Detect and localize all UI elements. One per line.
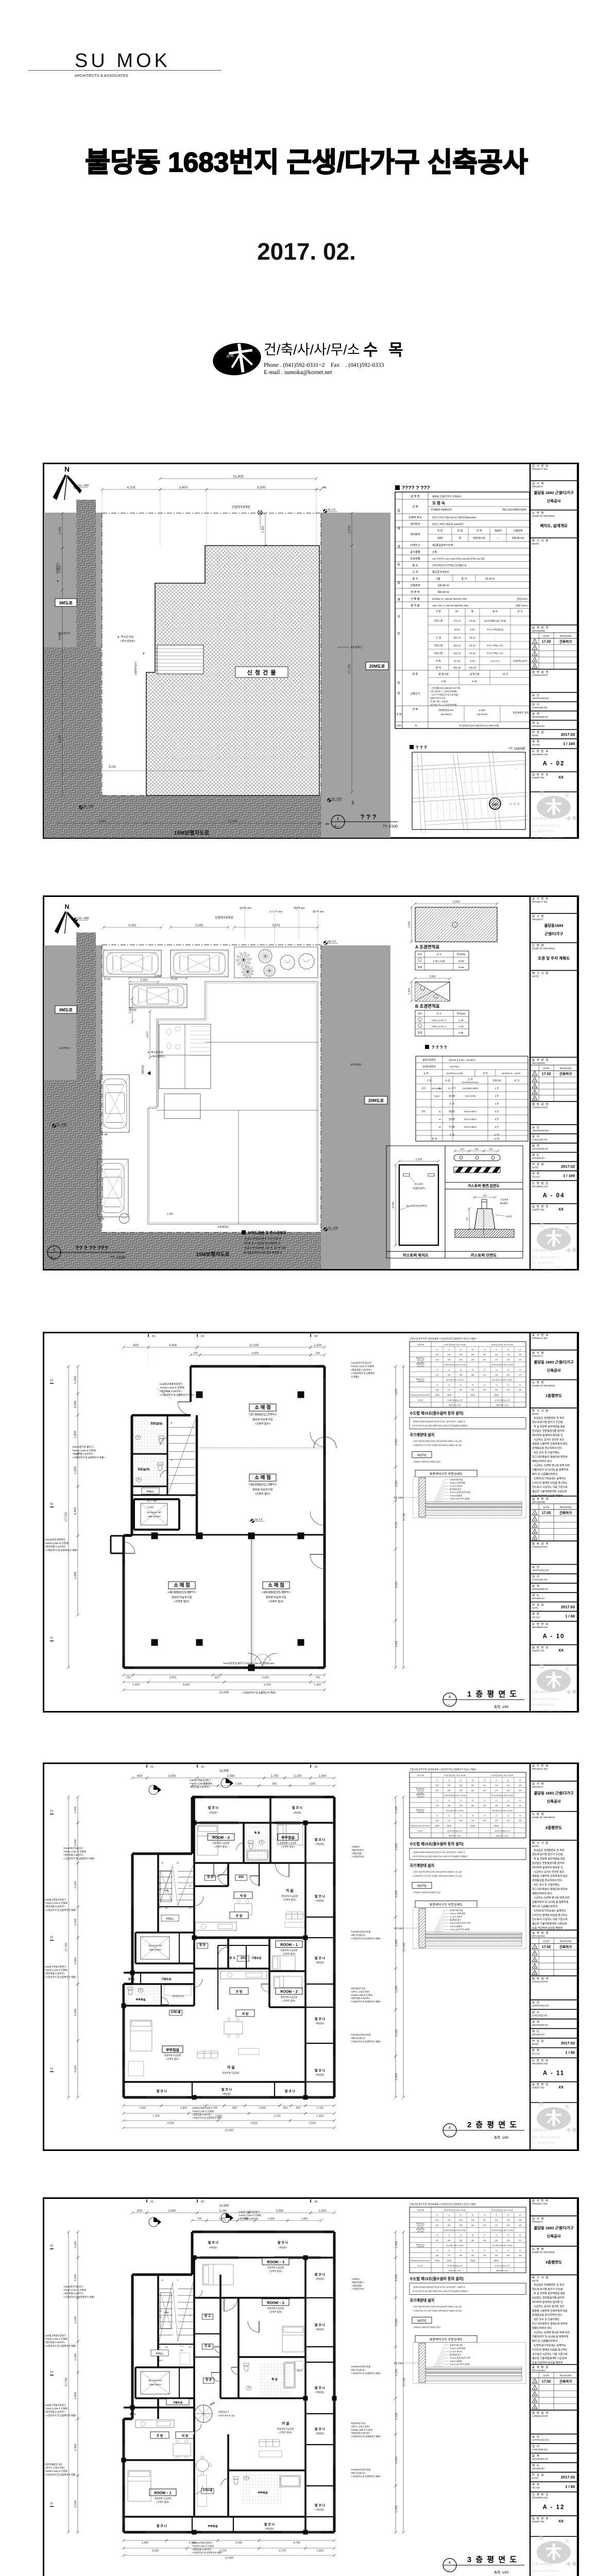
svg-text:木: 木 (565, 793, 570, 800)
svg-text:가: 가 (436, 2234, 438, 2236)
svg-text:<건축주 협의>: <건축주 협의> (268, 1600, 284, 1603)
svg-text:? ? ?: ? ? ? (360, 813, 376, 821)
svg-text:구 조: 구 조 (412, 570, 418, 574)
svg-text:–: – (498, 537, 499, 540)
svg-text:700: 700 (193, 1352, 198, 1355)
svg-text:가: 가 (484, 1799, 486, 1802)
svg-text:도 면 번 호: 도 면 번 호 (532, 1181, 549, 1185)
svg-text:DN: DN (158, 2346, 161, 2348)
svg-text:NOTE: NOTE (532, 543, 539, 545)
svg-text:<확장형>: <확장형> (315, 2022, 325, 2025)
svg-text:(16.97m2): (16.97m2) (477, 713, 488, 716)
svg-text:· 시공자는 공사의 천전한 모든: · 시공자는 공사의 천전한 모든 (532, 1870, 565, 1874)
svg-text:– 환경부의 환경표지인증을 받은 절수용 수도꼭지, 절수: – 환경부의 환경표지인증을 받은 절수용 수도꼭지, 절수영 양변기, 사워헤… (412, 1851, 465, 1853)
svg-text:벽돌치장쌓기: 벽돌치장쌓기 (352, 2280, 364, 2284)
svg-text:44.39: 44.39 (469, 652, 475, 655)
svg-text:용 도: 용 도 (492, 610, 498, 613)
svg-text:8,330: 8,330 (59, 735, 62, 743)
svg-text:폴리필름 깔기: 폴리필름 깔기 (450, 2353, 461, 2356)
svg-text:설 계 변 경: 설 계 변 경 (532, 1930, 549, 1935)
svg-text:16.97X0.2=3.39: 16.97X0.2=3.39 (446, 1072, 463, 1075)
svg-text:Ø13볼트: Ø13볼트 (500, 1201, 508, 1205)
svg-text:2,100: 2,100 (147, 1506, 154, 1509)
svg-text:연도에 표기환 높이가 우선됨.: 연도에 표기환 높이가 우선됨. (532, 1420, 564, 1424)
svg-text:5: 5 (534, 1537, 536, 1540)
svg-text:대: 대 (459, 536, 462, 540)
svg-text:건축허가: 건축허가 (559, 1944, 572, 1949)
svg-text:검 사: 검 사 (532, 1134, 540, 1139)
svg-text:◄· 투수콘 마감: ◄· 투수콘 마감 (147, 1050, 163, 1054)
svg-text:165: 165 (459, 1354, 463, 1356)
svg-text:1,700: 1,700 (270, 1775, 279, 1778)
svg-text:다(45): 다(45) (470, 1824, 475, 1827)
svg-text:Y3: Y3 (50, 1379, 53, 1382)
svg-text:2 본: 2 본 (495, 1087, 499, 1090)
svg-text:2.99: 2.99 (459, 1031, 464, 1034)
svg-text:THK60 LOW–E 단열재: THK60 LOW–E 단열재 (45, 1969, 67, 1972)
svg-text:발 코 니: 발 코 니 (315, 1838, 325, 1842)
svg-text:17,700: 17,700 (403, 2378, 406, 2386)
svg-text:GL –300: GL –300 (57, 1123, 66, 1126)
svg-text:거 실: 거 실 (282, 2421, 290, 2426)
svg-text:도로경계선: 도로경계선 (217, 1225, 229, 1229)
svg-text:공 사 명: 공 사 명 (532, 481, 544, 485)
svg-text:라: 라 (519, 1368, 521, 1371)
svg-text:9: 9 (177, 2279, 178, 2281)
svg-text:DRAWN BY: DRAWN BY (532, 2467, 545, 2470)
svg-text:특 기 사 항: 특 기 사 항 (532, 538, 549, 543)
svg-text:2,100: 2,100 (74, 1882, 77, 1889)
svg-text:광륜주택의 1.9이하: 광륜주택의 1.9이하 (496, 2269, 508, 2272)
svg-text:235: 235 (459, 1374, 463, 1376)
svg-text:거실의 바닥: 거실의 바닥 (417, 1380, 424, 1382)
svg-text:DESIGNED BY: DESIGNED BY (532, 2458, 548, 2461)
svg-text:<건축주 협의>: <건축주 협의> (279, 2431, 292, 2434)
svg-text:Phone . (041)592-0331~2: Phone . (041)592-0331~2 (531, 2569, 560, 2573)
svg-text:협 력 설 계: 협 력 설 계 (532, 2411, 549, 2415)
svg-text:145: 145 (483, 2224, 486, 2226)
svg-text:17.02: 17.02 (542, 1945, 551, 1949)
svg-text:THK30현무암 붙이기 THK60 LOW–E 단열재1: THK30현무암 붙이기 THK60 LOW–E 단열재1,600 (223, 1662, 275, 1665)
svg-text:5: 5 (534, 1972, 536, 1975)
svg-text:신축공사: 신축공사 (547, 499, 560, 503)
svg-text:145: 145 (483, 1789, 486, 1791)
svg-text:거실의 외벽: 거실의 외벽 (417, 2209, 424, 2211)
svg-text:다: 다 (460, 1348, 462, 1351)
svg-text:발 코 니: 발 코 니 (208, 2241, 218, 2245)
svg-text:· 도면에 표기하상세는 설계적도: · 도면에 표기하상세는 설계적도 (532, 1909, 566, 1912)
svg-text:교목: 교목 (421, 1087, 425, 1090)
svg-text:1,400: 1,400 (74, 1806, 77, 1814)
svg-text:21: 21 (189, 1885, 191, 1887)
svg-text:용 적 율: 용 적 율 (411, 604, 420, 607)
svg-text:木: 木 (565, 1225, 570, 1231)
svg-text:라: 라 (519, 2249, 521, 2251)
svg-text:6: 6 (431, 790, 432, 792)
svg-text:185: 185 (471, 1354, 474, 1356)
svg-text:3: 3 (534, 1524, 536, 1528)
svg-text:것으로서 시공자는 이를 기준으로: 것으로서 시공자는 이를 기준으로 (532, 1485, 568, 1489)
svg-text:대지위치: 대지위치 (410, 522, 420, 526)
svg-text:설 계: 설 계 (532, 1144, 540, 1148)
svg-text:23: 23 (177, 1862, 179, 1864)
svg-text:2,900: 2,900 (74, 2444, 77, 2451)
svg-text:6,000: 6,000 (392, 1202, 395, 1209)
svg-text:수도법 제15조(절수설비 등의 설치): 수도법 제15조(절수설비 등의 설치) (410, 1411, 464, 1415)
svg-text:Phone . (041)592-0331~2: Phone . (041)592-0331~2 (531, 1698, 560, 1701)
svg-text:THK40 시멘트몰탈: THK40 시멘트몰탈 (450, 2347, 466, 2350)
svg-text:TEL:010-9633-9247: TEL:010-9633-9247 (502, 509, 526, 512)
svg-text:3,300: 3,300 (395, 1890, 398, 1897)
svg-text:▲: ▲ (56, 580, 59, 583)
svg-text:E-mail . sumoka@kornet.net: E-mail . sumoka@kornet.net (531, 1267, 564, 1270)
svg-text:다: 다 (507, 1368, 509, 1371)
svg-text:2.35 x 5.95: 2.35 x 5.95 (433, 960, 445, 962)
svg-text:◄· 투수콘 마감: ◄· 투수콘 마감 (117, 635, 134, 639)
svg-text:DRAWING NO.: DRAWING NO. (532, 2062, 548, 2065)
svg-text:지역지구: 지역지구 (410, 543, 420, 547)
svg-text:2,300: 2,300 (140, 979, 147, 982)
svg-text:2,900: 2,900 (74, 2392, 77, 2399)
svg-text:THK20 완충재: THK20 완충재 (450, 2360, 462, 2362)
svg-text:<열관류율 0.26이하>: <열관류율 0.26이하> (63, 2292, 84, 2295)
svg-text:85: 85 (484, 2219, 486, 2222)
svg-text:4,677: 4,677 (146, 1031, 149, 1038)
svg-text:세탁기: 세탁기 (297, 2369, 302, 2372)
svg-text:H2.0 X W0.6: H2.0 X W0.6 (464, 1126, 476, 1128)
svg-text:E-mail . sumoka@kornet.net: E-mail . sumoka@kornet.net (531, 1709, 564, 1713)
svg-text:THK60 LOW–E 단열재: THK60 LOW–E 단열재 (45, 2407, 67, 2411)
svg-text:화장실(남): 화장실(남) (150, 1421, 163, 1426)
svg-text:NOTE: NOTE (532, 1413, 539, 1415)
svg-text:THK30포천석면대리: THK30포천석면대리 (45, 1538, 65, 1541)
svg-text:●: ● (439, 1126, 441, 1128)
svg-text:REVISIONS: REVISIONS (560, 1506, 572, 1509)
svg-text:외기에 간접 면하는 경우: 외기에 간접 면하는 경우 (495, 1829, 509, 1832)
svg-text:라: 라 (519, 1383, 521, 1386)
svg-text:인접대지경계선: 인접대지경계선 (215, 916, 233, 920)
svg-text:Y3: Y3 (50, 1810, 53, 1813)
svg-text:건축허가: 건축허가 (559, 1510, 572, 1515)
svg-text:외기에 간접 면하는 경우: 외기에 간접 면하는 경우 (495, 2264, 509, 2267)
svg-text:250: 250 (489, 1148, 493, 1150)
svg-text:소 매 점: 소 매 점 (268, 1582, 284, 1588)
svg-text:<확장형>: <확장형> (222, 2092, 231, 2096)
svg-text:SHEET NO.: SHEET NO. (532, 2520, 545, 2523)
svg-text:125: 125 (495, 1389, 498, 1391)
svg-text:소 매 점: 소 매 점 (174, 1582, 190, 1588)
svg-text:닫상없는 전망첨겸구물 설치하: 닫상없는 전망첨겸구물 설치하 (532, 1861, 565, 1865)
svg-text:제 도: 제 도 (532, 1593, 540, 1597)
svg-text:A/C: A/C (180, 2349, 183, 2351)
svg-text:CONSULTANT: CONSULTANT (532, 1106, 548, 1109)
svg-text:●: ● (439, 1087, 441, 1090)
svg-text:<시험성적서 및 납품확인서 제출>: <시험성적서 및 납품확인서 제출> (351, 2371, 381, 2375)
svg-text:라: 라 (472, 1348, 474, 1351)
svg-text:창 고: 창 고 (205, 2314, 211, 2318)
svg-text:라: 라 (472, 2249, 474, 2251)
svg-text:6,900: 6,900 (395, 1582, 398, 1588)
svg-text:도를 작성하여 승인올 확한후: 도를 작성하여 승인올 확한후 (532, 2361, 563, 2365)
svg-text:THK60 LOW–E 단열재: THK60 LOW–E 단열재 (45, 2337, 67, 2341)
svg-text:나(35): 나(35) (447, 1824, 451, 1827)
svg-text:최하층에 있는: 최하층에 있는 (416, 1793, 425, 1795)
svg-text:ELEV O.H: ELEV O.H (490, 660, 500, 663)
svg-text:196.90 m²: 196.90 m² (438, 584, 450, 587)
svg-text:6M도로: 6M도로 (59, 601, 73, 605)
svg-text:조경 및 주차 계획도: 조경 및 주차 계획도 (538, 956, 570, 961)
svg-text:최하층에 있는: 최하층에 있는 (416, 1378, 425, 1380)
svg-text:욕 실: 욕 실 (271, 2377, 278, 2381)
svg-text:45.42: 45.42 (469, 645, 475, 647)
svg-text:5: 5 (446, 808, 447, 810)
svg-text:연도에 표기환 높이가 우선됨.: 연도에 표기환 높이가 우선됨. (532, 2287, 564, 2291)
svg-text:1,600: 1,600 (74, 1466, 77, 1474)
svg-text:발 코 니: 발 코 니 (208, 1806, 218, 1810)
svg-text:천안시 서북구 불당11로 82 대원칸타빌603/606: 천안시 서북구 불당11로 82 대원칸타빌603/606 (432, 516, 476, 519)
svg-text:CHECKED BY: CHECKED BY (532, 2448, 548, 2451)
svg-text:공 사 명: 공 사 명 (532, 914, 544, 918)
svg-text:17,700: 17,700 (348, 664, 351, 674)
svg-text:琇: 琇 (539, 2102, 543, 2107)
svg-text:<37.60M2/11.37PY>: <37.60M2/11.37PY> (249, 1414, 277, 1417)
svg-text:11,400: 11,400 (233, 475, 244, 479)
svg-text:REVISIONS: REVISIONS (532, 2369, 545, 2371)
svg-text:THK60 LOW–E 단열재: THK60 LOW–E 단열재 (351, 1365, 374, 1368)
svg-text:지 목: 지 목 (457, 529, 463, 533)
svg-text:1,400: 1,400 (219, 2217, 226, 2221)
svg-text:라: 라 (519, 1779, 521, 1782)
svg-text:면적(M2): 면적(M2) (457, 1012, 466, 1015)
svg-text:XL 온수 파이프: XL 온수 파이프 (450, 1916, 463, 1918)
svg-text:바닥 난방인 경우 (0.22이하): 바닥 난방인 경우 (0.22이하) (446, 1809, 464, 1812)
svg-text:3: 3 (534, 1086, 536, 1089)
svg-text:가: 가 (436, 1368, 438, 1371)
svg-text:220: 220 (436, 2224, 439, 2226)
svg-text:328.90 X 0.05 = 16.45m2: 328.90 X 0.05 = 16.45m2 (449, 1059, 475, 1061)
svg-text:다(45): 다(45) (470, 2259, 475, 2262)
svg-text:200: 200 (459, 1389, 463, 1391)
svg-text:1,800: 1,800 (180, 2107, 187, 2110)
svg-text:발 코 니: 발 코 니 (315, 1894, 325, 1899)
svg-text:2,900: 2,900 (74, 1957, 77, 1964)
svg-text:건축면적1/8이하: 건축면적1/8이하 (513, 659, 527, 663)
svg-text:라: 라 (519, 2214, 521, 2216)
svg-text:부부욕실: 부부욕실 (258, 2490, 267, 2495)
svg-text:A - 12: A - 12 (543, 2504, 565, 2511)
svg-text:2층평면도: 2층평면도 (546, 1825, 562, 1830)
svg-text:발 코 니: 발 코 니 (315, 2503, 325, 2507)
svg-text:(40%)상록수: (40%)상록수 (432, 1087, 442, 1090)
svg-text:5 대: 5 대 (472, 680, 476, 683)
svg-text:나: 나 (496, 2214, 498, 2216)
svg-text:5,950: 5,950 (453, 901, 460, 904)
svg-text:<시험성적서 및 납품확인서 제출>: <시험성적서 및 납품확인서 제출> (45, 2473, 77, 2477)
svg-text:4,228: 4,228 (127, 486, 135, 489)
svg-text:필요한 기술적원봉계처 시공상세: 필요한 기술적원봉계처 시공상세 (532, 1490, 567, 1494)
svg-text:도로경계석: 도로경계석 (59, 1046, 70, 1050)
svg-text:소 계: 소 계 (449, 1133, 454, 1137)
svg-text:600: 600 (214, 1676, 219, 1679)
svg-text:8,000: 8,000 (257, 486, 266, 489)
svg-text:특 기 사 항: 특 기 사 항 (532, 1409, 549, 1413)
svg-text:식 당: 식 당 (182, 2434, 189, 2438)
svg-text:1,600: 1,600 (268, 2217, 275, 2221)
svg-text:라: 라 (472, 1383, 474, 1386)
svg-text:일 련 번 호: 일 련 번 호 (532, 2082, 549, 2087)
svg-text:1 / 80: 1 / 80 (565, 2050, 575, 2055)
svg-text:X2: X2 (201, 2200, 204, 2204)
svg-text:30: 30 (165, 1907, 167, 1909)
svg-text:2: 2 (534, 1079, 536, 1082)
svg-text:다(45): 다(45) (470, 1394, 475, 1396)
svg-text:3,400: 3,400 (169, 1344, 177, 1347)
svg-text:1,300: 1,300 (408, 988, 411, 995)
svg-text:신청면적: 신청면적 (513, 529, 522, 533)
svg-text:욕 실: 욕 실 (254, 1831, 260, 1835)
svg-text:라(50): 라(50) (494, 1394, 499, 1396)
svg-text:조 경: 조 경 (396, 713, 401, 716)
svg-text:광륜주택의 1.5이하: 광륜주택의 1.5이하 (449, 1835, 461, 1837)
svg-text:외기에 간접 면하는 경우 (0.22이하): 외기에 간접 면하는 경우 (0.22이하) (491, 1363, 514, 1366)
svg-text:346: 346 (322, 486, 327, 489)
svg-text:신축공사: 신축공사 (547, 2234, 560, 2239)
svg-text:1,700: 1,700 (317, 2107, 323, 2110)
svg-text:한실마루/고급장판: 한실마루/고급장판 (281, 1894, 298, 1898)
svg-text:195.76: 195.76 (453, 637, 461, 639)
svg-text:Y1: Y1 (50, 2067, 53, 2071)
svg-text:NOTE: NOTE (417, 1453, 427, 1457)
svg-text:DRAWN BY: DRAWN BY (532, 725, 545, 727)
svg-text:<확장형>: <확장형> (293, 1811, 302, 1815)
svg-text:소 나 무–25A: 소 나 무–25A (269, 910, 283, 913)
svg-text:다: 다 (507, 1348, 509, 1351)
svg-text:XX: XX (558, 1648, 564, 1652)
svg-text:가정용승강기: 가정용승강기 (218, 2411, 229, 2413)
svg-text:150.12: 150.12 (453, 645, 461, 647)
svg-text:1,400: 1,400 (132, 1684, 140, 1687)
svg-text:외기에 직접 면하는 경우 (0.26이하): 외기에 직접 면하는 경우 (0.26이하) (444, 1774, 466, 1776)
svg-text:낙엽수: 낙엽수 (434, 1095, 440, 1097)
svg-text:<본넥스 오필스마천>: <본넥스 오필스마천> (351, 1990, 370, 1993)
svg-text:나: 나 (448, 2234, 450, 2236)
svg-text:DRAWN BY: DRAWN BY (532, 1157, 545, 1160)
svg-text:P–C: P–C (180, 2345, 184, 2347)
svg-text:종단향: 종단향 (449, 1094, 455, 1097)
svg-text:거실의 바닥: 거실의 바닥 (417, 2245, 424, 2248)
svg-text:거 실: 거 실 (286, 1888, 294, 1893)
svg-text:5: 5 (534, 1098, 536, 1101)
svg-text:나: 나 (496, 1814, 498, 1817)
svg-text:X3: X3 (314, 2200, 317, 2204)
svg-text:<확장형>: <확장형> (315, 1899, 325, 1903)
svg-text:Y1: Y1 (50, 1637, 53, 1640)
svg-text:APPROVED BY: APPROVED BY (532, 2005, 549, 2007)
svg-text:N: N (64, 466, 70, 473)
svg-text:외기에 직접 면하는 경우 (0.15이하): 외기에 직접 면하는 경우 (0.15이하) (444, 1363, 466, 1366)
svg-text:VOID: VOID (164, 1889, 169, 1892)
svg-text:330: 330 (471, 2224, 474, 2226)
svg-text:2,300: 2,300 (429, 975, 436, 978)
svg-text:축척: 1/80: 축척: 1/80 (494, 2570, 509, 2574)
svg-text:건/축/사/사무/소: 건/축/사/사무/소 (531, 816, 553, 821)
svg-text:<ME–LESS>: <ME–LESS> (149, 1948, 162, 1951)
svg-text:1,500: 1,500 (139, 2107, 146, 2110)
svg-text:<열관류율>: <열관류율> (352, 2284, 363, 2287)
svg-text:5.94: 5.94 (470, 629, 475, 631)
svg-text:일 련 번 호: 일 련 번 호 (532, 772, 549, 776)
svg-text:바닥난방인 층간바닥(0.81이하): 바닥난방인 층간바닥(0.81이하) (411, 1394, 430, 1396)
svg-text:3,500: 3,500 (74, 2274, 77, 2281)
svg-text:127.99 / 75 = 1.71대 4: 127.99 / 75 = 1.71대 4대적용 (430, 703, 457, 706)
svg-text:· 모든 공사 및 건설지재는: · 모든 공사 및 건설지재는 (532, 1451, 560, 1454)
svg-text:2,532: 2,532 (348, 525, 351, 533)
svg-text:NOTE: NOTE (417, 1884, 427, 1888)
svg-text:제 도: 제 도 (532, 721, 540, 725)
svg-text:SL ± 0: SL ± 0 (255, 1518, 262, 1521)
svg-text:설 계 변 경: 설 계 변 경 (532, 1058, 549, 1062)
svg-text:14: 14 (159, 2316, 161, 2318)
svg-text:125: 125 (495, 1820, 498, 1822)
svg-text:<열관류율 0.26이하>: <열관류율 0.26이하> (45, 1972, 65, 1975)
svg-text:0.58청고벽돌치장쌓기: 0.58청고벽돌치장쌓기 (190, 1778, 211, 1782)
svg-text:1: 1 (534, 1512, 536, 1515)
svg-text:번호: 번호 (418, 1012, 422, 1015)
svg-text:<시험성적서 및 납품확인서 제출>: <시험성적서 및 납품확인서 제출> (351, 2040, 381, 2043)
svg-text:GL + 800: GL + 800 (78, 917, 89, 920)
svg-text:3,500: 3,500 (395, 2274, 398, 2281)
svg-text:NOTE: NOTE (532, 975, 539, 978)
svg-text:220: 220 (471, 1389, 474, 1391)
svg-text:카스토퍼: 카스토퍼 (415, 1182, 423, 1186)
svg-text:소 계: 소 계 (449, 1102, 454, 1106)
svg-text:지 번: 지 번 (437, 529, 443, 533)
svg-text:1,400: 1,400 (314, 1684, 321, 1687)
svg-text:NAME OF DRAWING: NAME OF DRAWING (532, 515, 555, 517)
svg-text:GL + 800: GL + 800 (78, 484, 89, 487)
svg-text:3,500: 3,500 (152, 2549, 159, 2552)
svg-text:수 목: 수 목 (567, 2128, 576, 2133)
svg-text:· 전상갑은 전체형면도 및 무단: · 전상갑은 전체형면도 및 무단 (532, 1416, 565, 1420)
svg-text:2,400: 2,400 (395, 2456, 398, 2464)
svg-text:Y3: Y3 (50, 2245, 53, 2248)
svg-text:설 계 명: 설 계 명 (411, 494, 420, 498)
svg-text:REVISIONS: REVISIONS (532, 1935, 545, 1937)
svg-text:설: 설 (397, 509, 400, 513)
svg-text:배치 및 시공确인하면서.: 배치 및 시공确인하면서. (532, 1905, 558, 1908)
svg-text:3,500: 3,500 (395, 2073, 398, 2080)
svg-text:<확장형>: <확장형> (209, 1811, 218, 1815)
svg-text:H2.5XW1.0XR8: H2.5XW1.0XR8 (463, 1087, 478, 1090)
svg-text:<38.93M2/11.78PY>: <38.93M2/11.78PY> (249, 1484, 277, 1487)
svg-text:140: 140 (507, 1820, 510, 1822)
svg-text:오폐수: 오폐수 (396, 724, 402, 727)
svg-text:12,000: 12,000 (225, 2129, 233, 2132)
svg-text:THK30현무암 붙이기: THK30현무암 붙이기 (72, 1445, 93, 1449)
svg-text:거실의 바닥: 거실의 바닥 (417, 2230, 424, 2233)
svg-text:공사종별: 공사종별 (410, 550, 420, 554)
svg-text:2,800: 2,800 (259, 2107, 266, 2110)
svg-text:규 격: 규 격 (468, 1078, 472, 1081)
svg-text:다용도실: 다용도실 (173, 2401, 183, 2404)
svg-text:<열관류율 0.26이하>: <열관류율 0.26이하> (45, 2410, 65, 2414)
svg-text:보차도점용 및 투수성포장: 보차도점용 및 투수성포장 (248, 1230, 286, 1235)
svg-text:움 제품납춰확인서를 첨머 제출할 것: 움 제품납춰확인서를 첨머 제출할 것 (244, 1251, 282, 1255)
svg-text:성 명: 성 명 (412, 504, 418, 509)
svg-text:59.22: 59.22 (469, 637, 475, 639)
svg-text:한실마루/고급장판: 한실마루/고급장판 (277, 2427, 294, 2431)
svg-text:H0.3 X W0.3: H0.3 X W0.3 (464, 1110, 476, 1113)
